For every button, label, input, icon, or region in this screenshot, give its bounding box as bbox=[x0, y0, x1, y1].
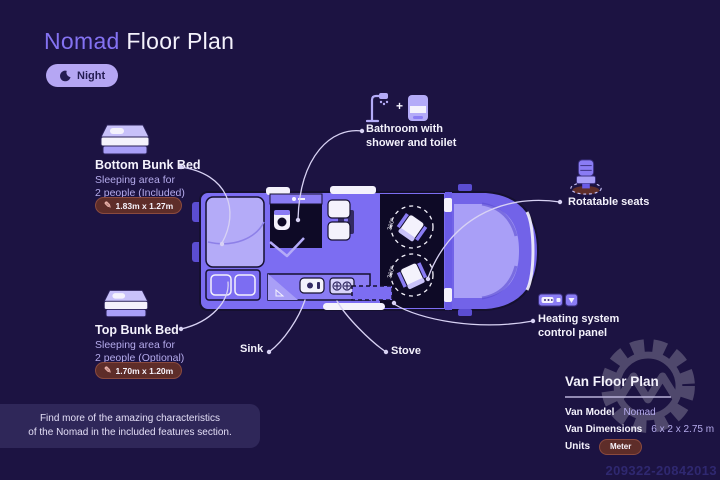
units-label: Units bbox=[565, 441, 590, 452]
bottom-bunk-dimensions-badge: ✎ 1.83m x 1.27m bbox=[95, 197, 182, 214]
ruler-icon: ✎ bbox=[104, 365, 112, 376]
van-dimensions-label: Van Dimensions bbox=[565, 424, 642, 435]
bottom-bunk-dimensions: 1.83m x 1.27m bbox=[116, 201, 174, 211]
title-rest: Floor Plan bbox=[120, 28, 235, 54]
heating-label-line1: Heating system bbox=[538, 313, 619, 327]
info-row-model: Van Model Nomad bbox=[565, 405, 656, 420]
footer-note: Find more of the amazing characteristics… bbox=[0, 404, 260, 448]
bathroom-callout: Bathroom with shower and toilet bbox=[366, 123, 456, 150]
bottom-bunk-title: Bottom Bunk Bed bbox=[95, 158, 201, 172]
stove-label: Stove bbox=[391, 345, 421, 359]
bottom-bunk-desc-line1: Sleeping area for bbox=[95, 174, 185, 187]
info-row-dimensions: Van Dimensions 6 x 2 x 2.75 m bbox=[565, 422, 714, 437]
top-bunk-title: Top Bunk Bed bbox=[95, 323, 179, 337]
night-mode-toggle[interactable]: Night bbox=[46, 64, 118, 87]
shower-icon bbox=[366, 91, 392, 125]
ruler-icon: ✎ bbox=[104, 200, 112, 211]
cabinet bbox=[328, 200, 350, 218]
van-model-value: Nomad bbox=[623, 407, 655, 418]
van-window bbox=[330, 186, 376, 194]
watermark-id: 209322-20842013 bbox=[605, 463, 717, 478]
moon-icon bbox=[59, 70, 71, 82]
sink-label: Sink bbox=[240, 343, 263, 357]
sliding-door bbox=[352, 286, 392, 300]
bathroom-label-line2: shower and toilet bbox=[366, 137, 456, 151]
night-mode-label: Night bbox=[77, 70, 105, 82]
info-row-units: Units Meter bbox=[565, 439, 642, 454]
top-bunk-desc-line1: Sleeping area for bbox=[95, 339, 184, 352]
entry-step bbox=[323, 303, 385, 310]
top-bunk-dimensions: 1.70m x 1.20m bbox=[116, 366, 174, 376]
van-dimensions-value: 6 x 2 x 2.75 m bbox=[651, 424, 714, 435]
bed-area bbox=[206, 197, 264, 300]
top-bunk-bed-icon bbox=[99, 285, 153, 323]
rotatable-seats-label: Rotatable seats bbox=[568, 196, 649, 210]
footer-note-line1: Find more of the amazing characteristics bbox=[0, 412, 265, 427]
cabinet bbox=[328, 222, 350, 240]
rotatable-seat-icon bbox=[567, 157, 605, 197]
info-panel-title: Van Floor Plan bbox=[565, 374, 659, 389]
brand-name: Nomad bbox=[44, 28, 120, 54]
stove-topview bbox=[330, 278, 354, 294]
van-cab bbox=[450, 184, 538, 316]
bottom-bunk-bed-icon bbox=[96, 119, 154, 161]
page-title: Nomad Floor Plan bbox=[44, 28, 234, 55]
van-model-label: Van Model bbox=[565, 407, 614, 418]
floorplan-canvas: Nomad Floor Plan Night Bottom Bunk Bed S… bbox=[0, 0, 720, 480]
footer-note-line2: of the Nomad in the included features se… bbox=[0, 426, 265, 441]
top-bunk-dimensions-badge: ✎ 1.70m x 1.20m bbox=[95, 362, 182, 379]
toilet-icon bbox=[407, 94, 429, 122]
van-floorplan-illustration: 360° 360° bbox=[186, 180, 546, 320]
plus-icon: + bbox=[396, 99, 403, 113]
units-meter-badge[interactable]: Meter bbox=[599, 439, 642, 455]
bathroom-label-line1: Bathroom with bbox=[366, 123, 456, 137]
info-panel-divider bbox=[565, 396, 671, 398]
